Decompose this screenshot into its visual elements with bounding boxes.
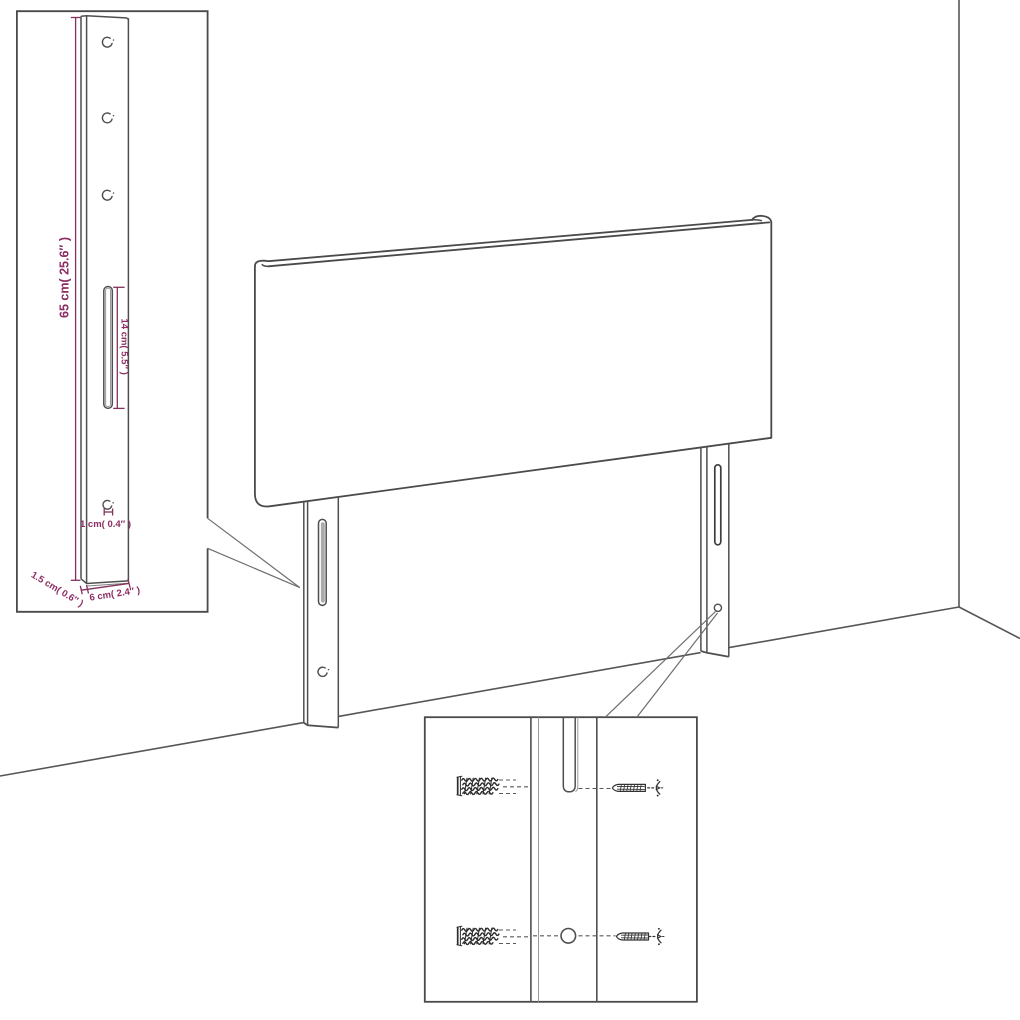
svg-text:65 cm( 25.6″ ): 65 cm( 25.6″ ) — [58, 237, 72, 318]
svg-text:14 cm( 5.5″ ): 14 cm( 5.5″ ) — [118, 319, 129, 375]
svg-text:1.5 cm( 0.6″ ): 1.5 cm( 0.6″ ) — [29, 570, 85, 610]
svg-text:1 cm( 0.4″ ): 1 cm( 0.4″ ) — [80, 519, 131, 530]
